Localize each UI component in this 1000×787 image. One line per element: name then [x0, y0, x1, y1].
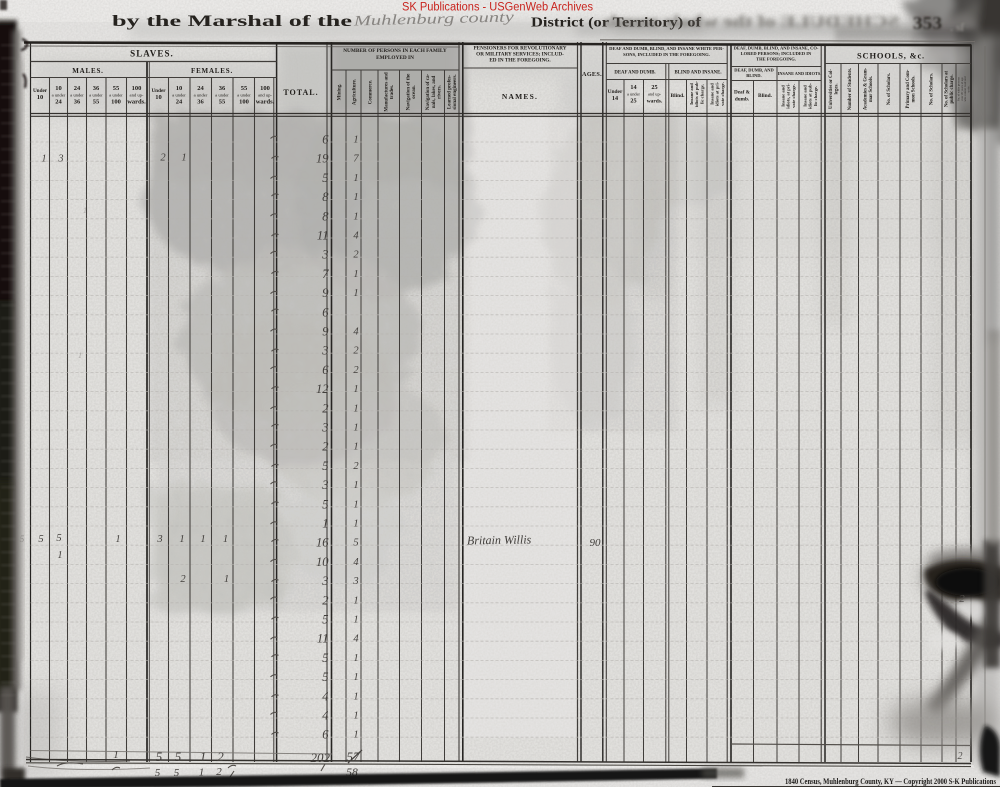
svg-text:1: 1 [353, 423, 358, 434]
svg-text:10: 10 [316, 555, 329, 569]
svg-text:DEAF AND DUMB.: DEAF AND DUMB. [614, 71, 655, 76]
svg-text:3: 3 [321, 344, 328, 358]
svg-text:1: 1 [223, 534, 228, 545]
svg-text:5: 5 [322, 651, 328, 665]
svg-text:SONS, INCLUDED IN THE FOREGOIN: SONS, INCLUDED IN THE FOREGOING. [623, 52, 710, 57]
svg-text:by the Marshal of the: by the Marshal of the [112, 13, 352, 30]
svg-text:SCHEDULE of the whole numb: SCHEDULE of the whole numb [605, 12, 900, 31]
svg-text:2: 2 [353, 461, 359, 472]
svg-text:2: 2 [160, 153, 166, 164]
svg-text:1: 1 [83, 206, 87, 215]
svg-text:6: 6 [322, 305, 329, 319]
svg-text:dumb.: dumb. [735, 97, 750, 103]
svg-text:a under: a under [627, 92, 641, 97]
svg-text:55: 55 [219, 99, 226, 106]
svg-text:Mining.: Mining. [338, 83, 343, 101]
svg-text:write.: write. [968, 85, 971, 92]
svg-text:5: 5 [322, 459, 328, 473]
svg-text:202: 202 [311, 750, 331, 765]
svg-text:1: 1 [353, 480, 358, 491]
svg-text:a under: a under [89, 93, 103, 98]
svg-text:36: 36 [93, 85, 100, 92]
svg-text:1: 1 [200, 534, 205, 545]
svg-text:36: 36 [197, 99, 204, 106]
svg-text:a under: a under [70, 93, 84, 98]
svg-text:DEAF, DUMB, BLIND, AND INSANE,: DEAF, DUMB, BLIND, AND INSANE, CO- [734, 46, 819, 51]
svg-text:NAMES.: NAMES. [502, 92, 538, 101]
svg-text:4: 4 [322, 689, 328, 703]
svg-text:Academies & Gram-: Academies & Gram- [863, 67, 868, 110]
svg-text:DEAF, DUMB, AND: DEAF, DUMB, AND [734, 68, 774, 73]
svg-text:1: 1 [353, 135, 358, 146]
svg-text:sional engineers.: sional engineers. [453, 74, 458, 110]
svg-text:14: 14 [630, 84, 636, 91]
svg-text:55: 55 [113, 85, 120, 92]
svg-text:ocean.: ocean. [412, 85, 417, 99]
svg-text:5: 5 [322, 613, 328, 627]
svg-text:7: 7 [322, 267, 329, 281]
svg-text:19: 19 [316, 152, 329, 166]
svg-text:a under: a under [109, 93, 123, 98]
svg-text:1: 1 [353, 384, 358, 395]
svg-text:1: 1 [353, 615, 358, 626]
svg-text:6: 6 [322, 728, 329, 742]
svg-text:24: 24 [197, 85, 204, 92]
svg-text:Manufactures and: Manufactures and [385, 72, 390, 111]
svg-text:3: 3 [321, 574, 328, 588]
svg-text:lic charge.: lic charge. [813, 86, 818, 106]
svg-text:Britain Willis: Britain Willis [467, 532, 532, 547]
svg-text:DEAF AND DUMB, BLIND, AND INSA: DEAF AND DUMB, BLIND, AND INSANE WHITE P… [609, 46, 724, 51]
svg-text:8: 8 [322, 209, 329, 223]
svg-text:10: 10 [55, 85, 62, 92]
svg-text:and up-: and up- [258, 93, 272, 98]
svg-text:2: 2 [353, 365, 359, 376]
svg-text:AGES.: AGES. [582, 71, 602, 78]
svg-text:3: 3 [58, 154, 64, 165]
svg-text:5: 5 [353, 538, 358, 549]
svg-text:1: 1 [179, 534, 184, 545]
svg-text:2: 2 [322, 593, 328, 607]
svg-text:3: 3 [321, 478, 328, 492]
svg-text:trades.: trades. [390, 84, 395, 99]
svg-text:TOTAL.: TOTAL. [283, 88, 318, 97]
svg-text:1: 1 [353, 173, 358, 184]
svg-text:1: 1 [116, 534, 121, 545]
svg-text:1: 1 [181, 153, 186, 164]
svg-text:5: 5 [322, 670, 328, 684]
svg-text:1: 1 [353, 711, 358, 722]
svg-text:353: 353 [913, 13, 942, 33]
svg-text:24: 24 [55, 99, 62, 106]
svg-text:8: 8 [322, 190, 329, 204]
svg-text:2: 2 [353, 346, 359, 357]
svg-text:No. of Scholars.: No. of Scholars. [930, 73, 935, 105]
svg-text:5: 5 [175, 749, 182, 764]
svg-text:Blind.: Blind. [758, 93, 773, 99]
svg-text:3: 3 [321, 248, 328, 262]
svg-text:and up-: and up- [648, 92, 662, 97]
svg-text:2: 2 [959, 593, 965, 605]
svg-text:Universities or Col-: Universities or Col- [829, 69, 834, 109]
svg-text:1: 1 [353, 192, 358, 203]
svg-text:No. of Scholars at: No. of Scholars at [944, 70, 949, 107]
svg-text:Navigation of ca-: Navigation of ca- [426, 73, 431, 110]
svg-text:2: 2 [353, 250, 359, 261]
svg-text:1: 1 [353, 499, 358, 510]
svg-text:1: 1 [353, 211, 358, 222]
svg-text:1: 1 [353, 653, 358, 664]
svg-text:1: 1 [78, 351, 82, 360]
svg-text:1: 1 [353, 730, 358, 741]
svg-text:1: 1 [353, 691, 358, 702]
svg-text:. sſ: . sſ [950, 20, 965, 34]
svg-text:Number of Students.: Number of Students. [848, 68, 853, 110]
svg-text:mar Schools.: mar Schools. [869, 76, 874, 102]
svg-text:SLAVES.: SLAVES. [130, 49, 174, 59]
svg-text:BLIND AND INSANE.: BLIND AND INSANE. [674, 71, 721, 76]
svg-text:36: 36 [219, 85, 226, 92]
svg-text:55: 55 [241, 85, 248, 92]
svg-text:leges.: leges. [835, 83, 840, 94]
svg-text:Commerce.: Commerce. [368, 79, 373, 104]
svg-text:6: 6 [322, 133, 329, 147]
svg-text:No. of Scholars.: No. of Scholars. [887, 73, 892, 105]
svg-text:BLIND.: BLIND. [746, 73, 761, 78]
svg-text:a under: a under [215, 93, 229, 98]
svg-text:100: 100 [239, 99, 249, 106]
svg-text:90: 90 [590, 537, 602, 549]
svg-text:a under: a under [237, 93, 251, 98]
svg-text:36: 36 [74, 99, 81, 106]
svg-text:1: 1 [353, 595, 358, 606]
svg-text:THE FOREGOING.: THE FOREGOING. [756, 57, 796, 62]
svg-text:1: 1 [353, 519, 358, 530]
svg-text:a under: a under [52, 93, 66, 98]
svg-text:1840 Census, Muhlenburg County: 1840 Census, Muhlenburg County, KY — Cop… [785, 777, 996, 786]
svg-text:1: 1 [353, 442, 358, 453]
svg-text:Deaf &: Deaf & [734, 90, 751, 96]
svg-text:2: 2 [322, 401, 328, 415]
svg-text:55: 55 [93, 99, 100, 106]
svg-text:1: 1 [224, 574, 229, 585]
svg-text:3: 3 [321, 421, 328, 435]
svg-text:2: 2 [958, 751, 963, 762]
svg-text:a under: a under [172, 93, 186, 98]
svg-text:INSANE AND IDIOTS.: INSANE AND IDIOTS. [778, 71, 822, 76]
svg-text:9: 9 [322, 325, 329, 339]
svg-text:24: 24 [74, 85, 81, 92]
svg-text:10: 10 [37, 94, 44, 101]
svg-text:vate charge.: vate charge. [791, 84, 796, 108]
svg-text:4: 4 [353, 557, 359, 568]
svg-text:1: 1 [353, 288, 358, 299]
svg-text:11: 11 [317, 229, 329, 243]
svg-text:10: 10 [155, 94, 162, 101]
svg-text:4: 4 [353, 634, 359, 645]
svg-text:25: 25 [630, 98, 636, 105]
svg-text:5: 5 [322, 171, 328, 185]
svg-text:5: 5 [156, 749, 163, 764]
svg-text:NUMBER OF PERSONS IN EACH FAMI: NUMBER OF PERSONS IN EACH FAMILY [343, 48, 447, 54]
svg-text:vate charge.: vate charge. [720, 82, 725, 106]
svg-text:100: 100 [132, 85, 142, 92]
svg-text:Primary and Com-: Primary and Com- [906, 69, 911, 108]
svg-text:100: 100 [260, 85, 270, 92]
svg-text:10: 10 [176, 85, 183, 92]
svg-text:1: 1 [58, 550, 63, 561]
svg-text:4: 4 [322, 709, 328, 723]
svg-text:1: 1 [353, 672, 358, 683]
svg-text:1: 1 [353, 269, 358, 280]
svg-text:FEMALES.: FEMALES. [191, 67, 233, 75]
svg-text:16: 16 [316, 536, 329, 550]
svg-text:3: 3 [352, 576, 358, 587]
svg-text:2: 2 [180, 574, 186, 585]
svg-text:5: 5 [56, 533, 61, 544]
svg-text:2: 2 [322, 440, 328, 454]
svg-text:and up-: and up- [130, 93, 144, 98]
svg-text:14: 14 [612, 95, 618, 102]
svg-text:LORED PERSONS; INCLUDED IN: LORED PERSONS; INCLUDED IN [741, 51, 812, 56]
svg-text:3: 3 [156, 534, 162, 545]
svg-text:1: 1 [113, 749, 119, 761]
svg-text:public charge.: public charge. [950, 74, 955, 103]
svg-text:24: 24 [176, 99, 183, 106]
svg-text:2: 2 [217, 749, 224, 764]
svg-text:wards.: wards. [127, 99, 146, 106]
svg-text:4: 4 [353, 327, 359, 338]
svg-text:lic charge.: lic charge. [699, 84, 704, 104]
svg-text:25: 25 [651, 84, 657, 91]
svg-text:SCHOOLS, &c.: SCHOOLS, &c. [857, 51, 925, 61]
svg-text:5: 5 [38, 534, 43, 545]
svg-text:1: 1 [353, 403, 358, 414]
svg-text:nals, lakes, and: nals, lakes, and [432, 76, 437, 109]
svg-text:1: 1 [42, 154, 47, 165]
svg-text:1: 1 [322, 517, 328, 531]
svg-text:wards.: wards. [647, 99, 663, 105]
svg-text:Navigation of the: Navigation of the [407, 73, 412, 110]
svg-text:9: 9 [322, 286, 329, 300]
svg-text:12: 12 [316, 382, 329, 396]
svg-text:Blind.: Blind. [671, 93, 686, 99]
svg-text:1: 1 [200, 749, 207, 764]
svg-text:11: 11 [317, 632, 329, 646]
svg-text:mon Schools.: mon Schools. [912, 76, 917, 103]
svg-text:Learned profes-: Learned profes- [448, 75, 453, 110]
svg-text:7: 7 [353, 154, 359, 165]
svg-text:4: 4 [353, 231, 359, 242]
svg-text:EMPLOYED IN: EMPLOYED IN [376, 55, 414, 61]
svg-text:6: 6 [322, 363, 329, 377]
svg-text:MALES.: MALES. [72, 67, 103, 75]
svg-text:5: 5 [322, 497, 328, 511]
svg-text:a under: a under [194, 93, 208, 98]
svg-text:ED IN THE FOREGOING.: ED IN THE FOREGOING. [489, 58, 551, 64]
svg-text:100: 100 [111, 99, 121, 106]
svg-text:wards.: wards. [256, 99, 275, 106]
svg-text:Agriculture.: Agriculture. [352, 78, 357, 105]
svg-text:rivers.: rivers. [437, 84, 442, 98]
